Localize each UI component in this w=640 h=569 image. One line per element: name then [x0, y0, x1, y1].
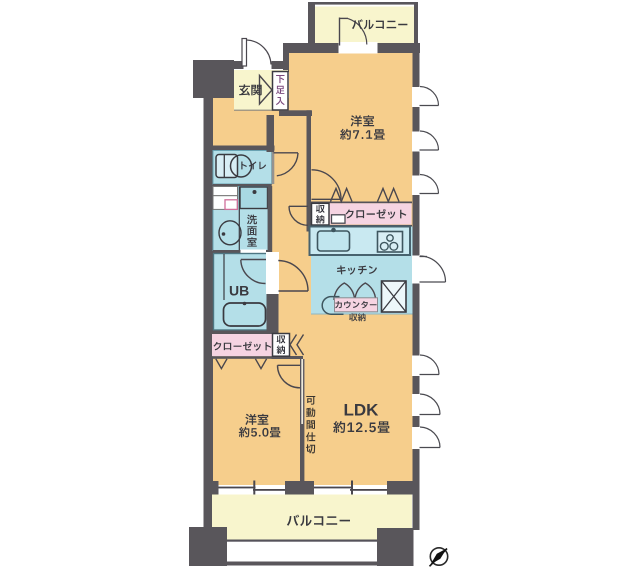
svg-text:UB: UB: [229, 283, 249, 299]
svg-text:LDK: LDK: [344, 401, 380, 420]
